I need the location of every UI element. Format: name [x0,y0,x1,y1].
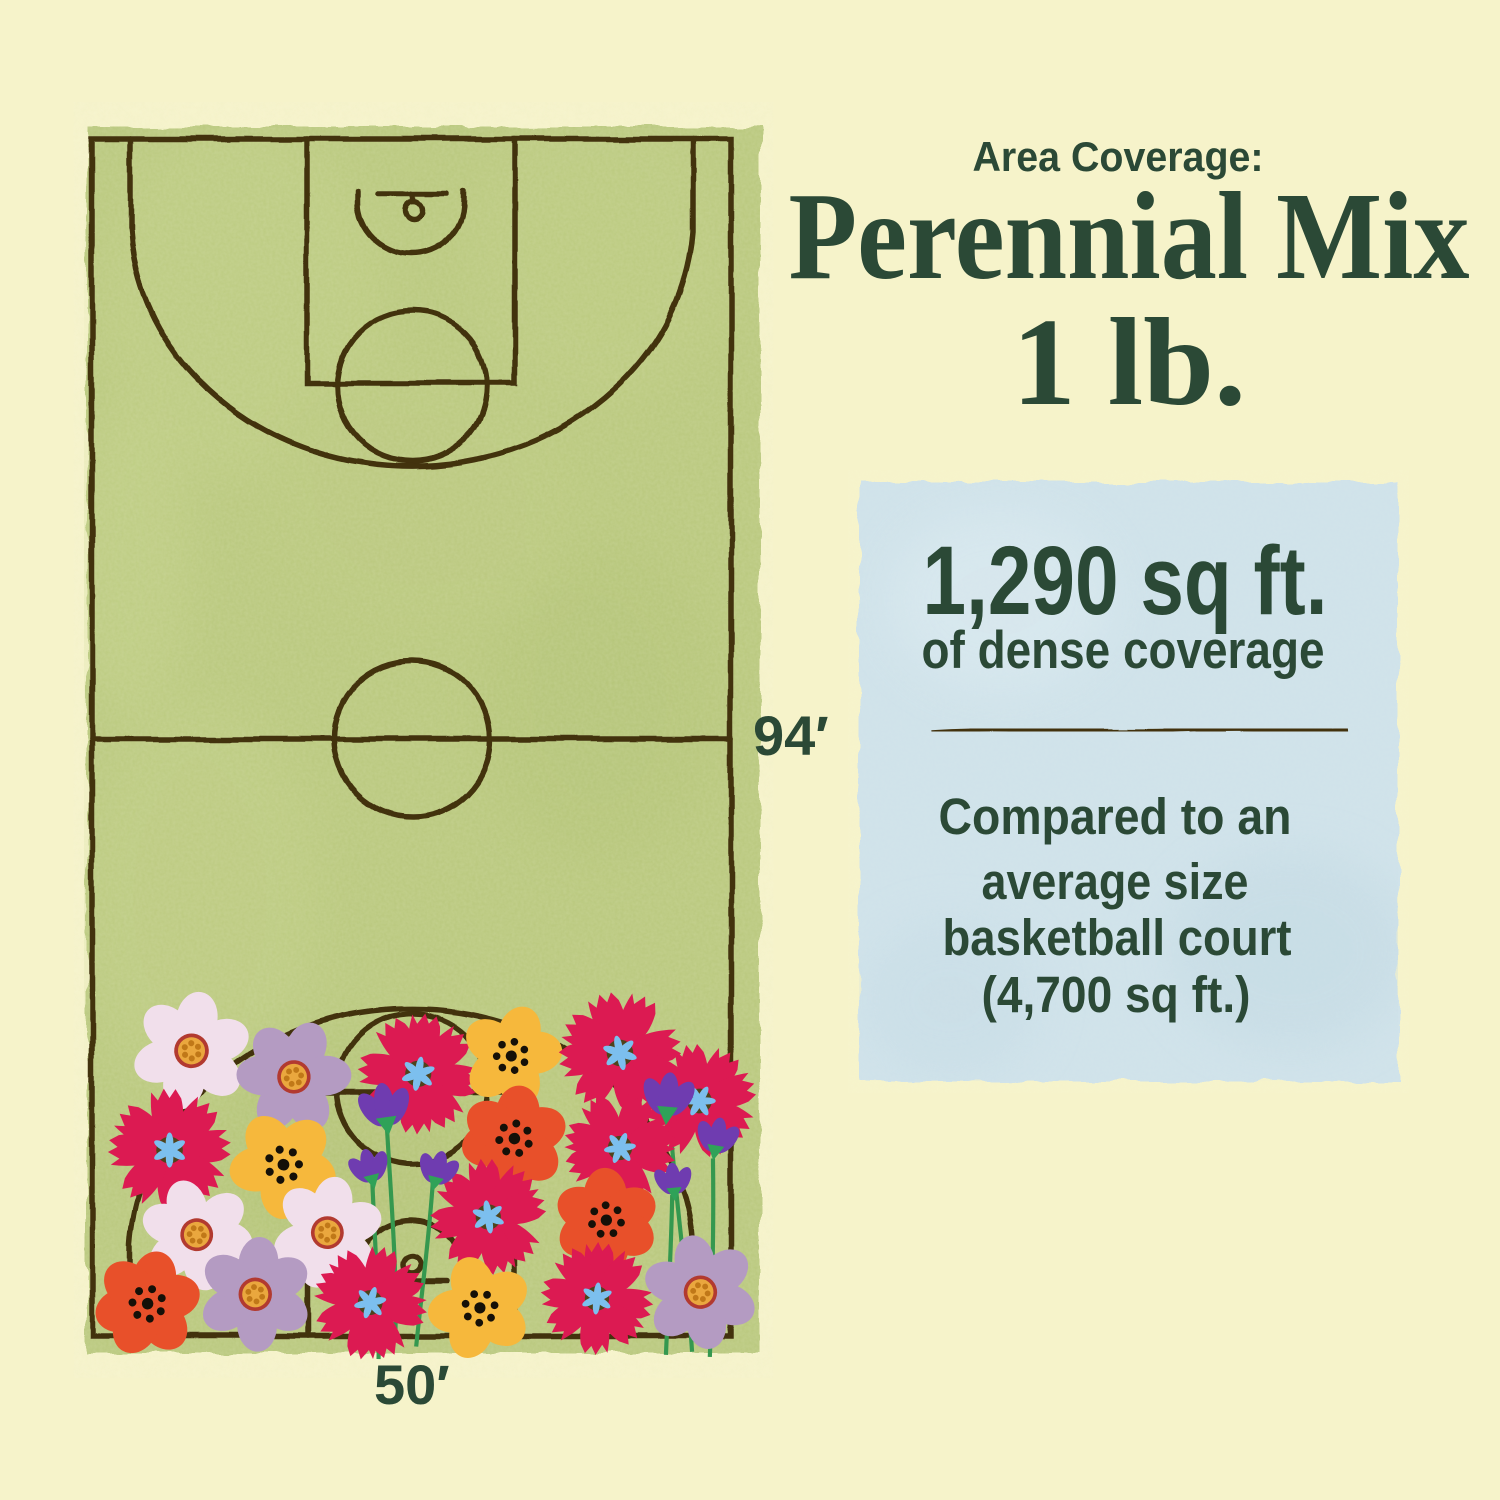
svg-text:1,290 sq ft.: 1,290 sq ft. [923,526,1328,635]
svg-text:(4,700 sq ft.): (4,700 sq ft.) [982,966,1251,1023]
svg-text:94′: 94′ [753,704,829,767]
svg-text:50′: 50′ [374,1353,450,1416]
svg-text:Perennial Mix: Perennial Mix [789,168,1470,306]
svg-text:average size: average size [982,853,1249,910]
svg-text:basketball court: basketball court [943,909,1292,966]
svg-text:Compared to an: Compared to an [939,788,1292,845]
svg-text:of dense coverage: of dense coverage [922,621,1325,680]
svg-text:1 lb.: 1 lb. [1012,294,1246,432]
